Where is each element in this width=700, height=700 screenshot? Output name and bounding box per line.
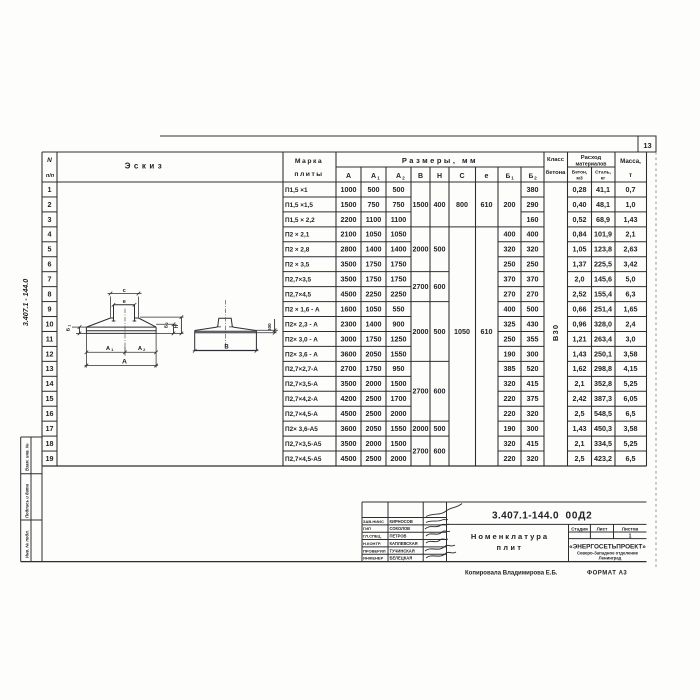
svg-text:500: 500 — [434, 245, 446, 254]
svg-text:ПРОВЕРИЛ: ПРОВЕРИЛ — [363, 548, 386, 553]
svg-text:355: 355 — [527, 334, 539, 343]
svg-text:4200: 4200 — [341, 394, 357, 403]
svg-text:320: 320 — [527, 409, 539, 418]
svg-text:1,05: 1,05 — [573, 245, 587, 254]
svg-text:500: 500 — [434, 424, 446, 433]
svg-text:3,42: 3,42 — [624, 260, 638, 269]
svg-text:500: 500 — [393, 185, 405, 194]
svg-text:N: N — [47, 157, 52, 164]
svg-text:190: 190 — [504, 424, 516, 433]
svg-text:П2 × 3,5: П2 × 3,5 — [285, 262, 310, 269]
svg-text:0,7: 0,7 — [626, 185, 636, 194]
svg-text:ЗАВ.НИИС: ЗАВ.НИИС — [363, 519, 384, 524]
svg-text:400: 400 — [434, 200, 446, 209]
svg-text:400: 400 — [527, 230, 539, 239]
svg-text:В30: В30 — [551, 324, 560, 341]
svg-text:1400: 1400 — [391, 245, 407, 254]
svg-text:320: 320 — [527, 245, 539, 254]
svg-text:5,25: 5,25 — [624, 439, 638, 448]
svg-text:П2,7×3,5-А5: П2,7×3,5-А5 — [285, 441, 322, 448]
svg-text:2000: 2000 — [413, 424, 429, 433]
svg-text:16: 16 — [46, 409, 54, 418]
svg-text:415: 415 — [527, 439, 539, 448]
svg-text:1,43: 1,43 — [624, 215, 638, 224]
svg-text:3.407.1 - 144.0: 3.407.1 - 144.0 — [23, 279, 30, 326]
svg-text:2,5: 2,5 — [575, 454, 585, 463]
svg-text:1100: 1100 — [391, 215, 407, 224]
svg-text:П1,5 ×1: П1,5 ×1 — [285, 187, 308, 194]
svg-text:П2,7×3,5: П2,7×3,5 — [285, 277, 312, 284]
svg-text:П2× 3,6 - А: П2× 3,6 - А — [285, 351, 318, 358]
svg-text:1750: 1750 — [366, 334, 382, 343]
svg-text:6,5: 6,5 — [626, 409, 636, 418]
svg-text:Размеры, мм: Размеры, мм — [402, 156, 478, 165]
svg-text:2000: 2000 — [391, 409, 407, 418]
svg-text:1050: 1050 — [454, 327, 470, 336]
svg-text:101,9: 101,9 — [594, 230, 612, 239]
svg-text:500: 500 — [434, 327, 446, 336]
svg-text:18: 18 — [46, 439, 54, 448]
svg-text:2500: 2500 — [366, 394, 382, 403]
svg-text:1400: 1400 — [366, 245, 382, 254]
svg-text:3: 3 — [48, 215, 52, 224]
svg-text:2100: 2100 — [341, 230, 357, 239]
svg-text:1700: 1700 — [391, 394, 407, 403]
svg-text:материалов: материалов — [576, 162, 607, 168]
svg-text:4500: 4500 — [341, 290, 357, 299]
svg-text:2,0: 2,0 — [575, 275, 585, 284]
svg-text:кг: кг — [601, 177, 605, 182]
svg-text:450,3: 450,3 — [594, 424, 612, 433]
svg-text:2700: 2700 — [413, 446, 429, 455]
svg-text:5,0: 5,0 — [626, 275, 636, 284]
svg-text:Ленинград: Ленинград — [599, 556, 622, 561]
svg-text:Сталь,: Сталь, — [595, 170, 611, 176]
svg-text:750: 750 — [368, 200, 380, 209]
svg-text:290: 290 — [527, 200, 539, 209]
svg-text:«ЭНЕРГОСЕТЬПРОЕКТ»: «ЭНЕРГОСЕТЬПРОЕКТ» — [569, 544, 646, 551]
svg-text:П2,7×4,5-А: П2,7×4,5-А — [285, 411, 318, 418]
svg-text:423,2: 423,2 — [594, 454, 612, 463]
svg-text:1750: 1750 — [366, 364, 382, 373]
svg-text:Н.КОНТР.: Н.КОНТР. — [363, 541, 381, 546]
svg-text:е: е — [485, 173, 489, 180]
svg-text:0,96: 0,96 — [573, 319, 587, 328]
svg-text:15: 15 — [46, 394, 54, 403]
svg-text:БЕЛЕЦКАЯ: БЕЛЕЦКАЯ — [390, 556, 413, 561]
svg-text:270: 270 — [527, 290, 539, 299]
svg-text:2,63: 2,63 — [624, 245, 638, 254]
svg-text:8: 8 — [48, 290, 52, 299]
svg-text:220: 220 — [504, 409, 516, 418]
svg-text:1100: 1100 — [366, 215, 382, 224]
svg-text:263,4: 263,4 — [594, 334, 612, 343]
svg-text:41,1: 41,1 — [596, 185, 610, 194]
svg-text:Марка: Марка — [295, 158, 323, 165]
svg-text:190: 190 — [504, 349, 516, 358]
svg-text:68,9: 68,9 — [596, 215, 610, 224]
svg-text:520: 520 — [527, 364, 539, 373]
svg-text:13: 13 — [46, 364, 54, 373]
svg-text:14: 14 — [46, 379, 54, 388]
svg-text:550: 550 — [393, 304, 405, 313]
svg-text:900: 900 — [393, 319, 405, 328]
svg-text:2000: 2000 — [413, 327, 429, 336]
svg-text:400: 400 — [504, 304, 516, 313]
svg-text:251,4: 251,4 — [594, 304, 612, 313]
svg-text:3600: 3600 — [341, 349, 357, 358]
svg-text:А: А — [346, 173, 351, 180]
svg-text:П2,7×2,7-А: П2,7×2,7-А — [285, 366, 318, 373]
svg-text:250: 250 — [504, 260, 516, 269]
svg-text:1: 1 — [67, 325, 71, 327]
svg-text:2: 2 — [165, 322, 169, 324]
svg-text:380: 380 — [527, 185, 539, 194]
svg-text:2: 2 — [48, 200, 52, 209]
svg-text:2050: 2050 — [366, 424, 382, 433]
svg-text:600: 600 — [434, 387, 446, 396]
svg-text:11: 11 — [46, 334, 54, 343]
svg-text:3000: 3000 — [341, 334, 357, 343]
svg-text:3500: 3500 — [341, 260, 357, 269]
svg-text:КАПЛЕВСКАЯ: КАПЛЕВСКАЯ — [390, 541, 418, 546]
svg-text:ИНЖЕНЕР: ИНЖЕНЕР — [363, 556, 384, 561]
svg-text:бетона: бетона — [546, 169, 567, 176]
svg-text:1050: 1050 — [391, 230, 407, 239]
svg-text:А: А — [396, 173, 401, 180]
svg-text:1,43: 1,43 — [573, 349, 587, 358]
svg-text:610: 610 — [481, 327, 493, 336]
svg-text:3,58: 3,58 — [624, 349, 638, 358]
svg-text:400: 400 — [504, 230, 516, 239]
svg-text:610: 610 — [481, 200, 493, 209]
svg-text:Лист: Лист — [597, 526, 609, 531]
svg-text:1600: 1600 — [341, 304, 357, 313]
svg-text:200: 200 — [504, 200, 516, 209]
svg-text:Листов: Листов — [622, 526, 639, 531]
svg-text:2250: 2250 — [391, 290, 407, 299]
svg-text:5: 5 — [48, 245, 52, 254]
svg-text:250: 250 — [527, 260, 539, 269]
svg-text:2,42: 2,42 — [573, 394, 587, 403]
svg-text:1550: 1550 — [391, 424, 407, 433]
svg-text:7: 7 — [48, 275, 52, 284]
svg-text:334,5: 334,5 — [594, 439, 612, 448]
svg-text:ГЛ.СПЕЦ.: ГЛ.СПЕЦ. — [363, 534, 382, 539]
svg-text:1000: 1000 — [341, 185, 357, 194]
svg-text:А: А — [371, 173, 376, 180]
svg-text:300: 300 — [527, 349, 539, 358]
svg-text:2200: 2200 — [341, 215, 357, 224]
svg-text:Номенклатура: Номенклатура — [471, 532, 549, 541]
svg-text:1,62: 1,62 — [573, 364, 587, 373]
svg-text:Инв. № подл.: Инв. № подл. — [25, 530, 30, 558]
svg-text:320: 320 — [504, 245, 516, 254]
svg-text:155,4: 155,4 — [594, 290, 612, 299]
svg-text:ПЕТРОВ: ПЕТРОВ — [390, 534, 407, 539]
svg-text:3500: 3500 — [341, 275, 357, 284]
svg-text:ГИП: ГИП — [363, 526, 371, 531]
svg-text:В: В — [418, 173, 423, 180]
svg-text:2500: 2500 — [366, 409, 382, 418]
svg-text:325: 325 — [504, 319, 516, 328]
svg-text:2,1: 2,1 — [626, 230, 636, 239]
svg-text:220: 220 — [504, 394, 516, 403]
svg-text:3,58: 3,58 — [624, 424, 638, 433]
svg-text:415: 415 — [527, 379, 539, 388]
svg-text:2700: 2700 — [341, 364, 357, 373]
svg-text:1750: 1750 — [391, 275, 407, 284]
svg-text:2000: 2000 — [413, 245, 429, 254]
svg-text:А: А — [122, 358, 127, 365]
svg-text:430: 430 — [527, 319, 539, 328]
svg-text:4500: 4500 — [341, 454, 357, 463]
svg-text:320: 320 — [527, 454, 539, 463]
svg-text:П2× 2,3 - А: П2× 2,3 - А — [285, 321, 318, 328]
svg-text:2700: 2700 — [413, 387, 429, 396]
svg-text:П2,7×4,5-А5: П2,7×4,5-А5 — [285, 456, 322, 463]
svg-text:Класс: Класс — [547, 157, 565, 163]
svg-text:1500: 1500 — [391, 439, 407, 448]
svg-text:2,52: 2,52 — [573, 290, 587, 299]
svg-text:3,0: 3,0 — [626, 334, 636, 343]
svg-text:5,25: 5,25 — [624, 379, 638, 388]
svg-text:1: 1 — [629, 534, 632, 540]
svg-text:0,40: 0,40 — [573, 200, 587, 209]
svg-text:160: 160 — [527, 215, 539, 224]
svg-text:250,1: 250,1 — [594, 349, 612, 358]
svg-text:48,1: 48,1 — [596, 200, 610, 209]
svg-text:6,3: 6,3 — [626, 290, 636, 299]
svg-text:19: 19 — [46, 454, 54, 463]
svg-text:387,3: 387,3 — [594, 394, 612, 403]
svg-text:ТУЧИНСКАЯ: ТУЧИНСКАЯ — [390, 548, 415, 553]
svg-text:6,05: 6,05 — [624, 394, 638, 403]
svg-text:м3: м3 — [576, 176, 583, 182]
svg-text:500: 500 — [527, 304, 539, 313]
svg-text:СОКОЛОВ: СОКОЛОВ — [390, 526, 411, 531]
svg-text:Стадия: Стадия — [571, 526, 588, 531]
svg-text:В: В — [224, 345, 229, 351]
svg-text:3.407.1-144.0: 3.407.1-144.0 — [492, 511, 559, 522]
svg-text:П2,7×4,2-А: П2,7×4,2-А — [285, 396, 318, 403]
svg-text:2,5: 2,5 — [575, 409, 585, 418]
svg-text:1750: 1750 — [391, 260, 407, 269]
svg-text:т: т — [629, 172, 632, 179]
svg-text:Расход: Расход — [581, 155, 602, 161]
svg-text:750: 750 — [393, 200, 405, 209]
svg-text:П1,5 × 2,2: П1,5 × 2,2 — [285, 217, 315, 224]
svg-text:3500: 3500 — [341, 379, 357, 388]
svg-text:1400: 1400 — [366, 319, 382, 328]
svg-text:Подпись и дата: Подпись и дата — [25, 483, 30, 518]
svg-text:П2× 3,0 - А: П2× 3,0 - А — [285, 336, 318, 343]
svg-text:3500: 3500 — [341, 439, 357, 448]
svg-text:2700: 2700 — [413, 282, 429, 291]
svg-text:12: 12 — [46, 349, 54, 358]
svg-text:320: 320 — [504, 379, 516, 388]
svg-text:Б: Б — [164, 325, 169, 328]
svg-text:800: 800 — [456, 200, 468, 209]
svg-text:1750: 1750 — [366, 260, 382, 269]
svg-text:13: 13 — [643, 141, 651, 150]
svg-text:6: 6 — [48, 260, 52, 269]
svg-text:352,8: 352,8 — [594, 379, 612, 388]
svg-text:9: 9 — [48, 304, 52, 313]
svg-text:плиты: плиты — [294, 171, 323, 178]
svg-text:2000: 2000 — [391, 454, 407, 463]
svg-text:2,1: 2,1 — [575, 439, 585, 448]
svg-text:300: 300 — [527, 424, 539, 433]
svg-text:п/п: п/п — [46, 173, 55, 179]
svg-text:Б: Б — [506, 173, 511, 180]
svg-text:П2 × 1,6 - А: П2 × 1,6 - А — [285, 306, 320, 313]
svg-text:123,8: 123,8 — [594, 245, 612, 254]
svg-text:270: 270 — [504, 290, 516, 299]
svg-text:1050: 1050 — [366, 230, 382, 239]
svg-text:0,28: 0,28 — [573, 185, 587, 194]
svg-text:Н: Н — [174, 324, 180, 328]
svg-text:2250: 2250 — [366, 290, 382, 299]
svg-text:1,43: 1,43 — [573, 424, 587, 433]
svg-text:КИРНОСОВ: КИРНОСОВ — [390, 519, 413, 524]
svg-text:1500: 1500 — [341, 200, 357, 209]
svg-text:2000: 2000 — [366, 379, 382, 388]
svg-text:1,65: 1,65 — [624, 304, 638, 313]
svg-text:1: 1 — [48, 185, 52, 194]
svg-text:П1,5 ×1,5: П1,5 ×1,5 — [285, 202, 313, 209]
svg-text:0,84: 0,84 — [573, 230, 587, 239]
svg-text:1250: 1250 — [391, 334, 407, 343]
svg-text:Бетон,: Бетон, — [572, 170, 588, 176]
svg-text:2,1: 2,1 — [575, 379, 585, 388]
svg-text:4: 4 — [48, 230, 52, 239]
svg-text:4500: 4500 — [341, 409, 357, 418]
svg-text:П2 × 2,8: П2 × 2,8 — [285, 247, 310, 254]
svg-text:2300: 2300 — [341, 319, 357, 328]
svg-text:298,8: 298,8 — [594, 364, 612, 373]
svg-text:2500: 2500 — [366, 454, 382, 463]
svg-text:370: 370 — [527, 275, 539, 284]
svg-text:1750: 1750 — [366, 275, 382, 284]
svg-text:1,21: 1,21 — [573, 334, 587, 343]
svg-text:П2× 3,6-А5: П2× 3,6-А5 — [285, 426, 318, 433]
svg-text:2050: 2050 — [366, 349, 382, 358]
svg-text:328,0: 328,0 — [594, 319, 612, 328]
svg-text:225,5: 225,5 — [594, 260, 612, 269]
svg-text:1500: 1500 — [413, 200, 429, 209]
svg-text:1,0: 1,0 — [626, 200, 636, 209]
svg-text:600: 600 — [434, 446, 446, 455]
svg-text:100: 100 — [267, 323, 272, 331]
svg-text:375: 375 — [527, 394, 539, 403]
svg-text:Копировала Владимирова Е.Б.: Копировала Владимирова Е.Б. — [465, 571, 558, 577]
svg-text:6,5: 6,5 — [626, 454, 636, 463]
svg-text:3600: 3600 — [341, 424, 357, 433]
svg-text:17: 17 — [46, 424, 54, 433]
svg-text:1050: 1050 — [366, 304, 382, 313]
svg-text:Эскиз: Эскиз — [125, 162, 166, 171]
svg-text:250: 250 — [504, 334, 516, 343]
svg-text:370: 370 — [504, 275, 516, 284]
svg-text:500: 500 — [368, 185, 380, 194]
svg-text:Взам. инв. №: Взам. инв. № — [25, 443, 30, 471]
svg-text:00Д2: 00Д2 — [565, 511, 592, 522]
svg-text:Б: Б — [529, 173, 534, 180]
svg-text:1550: 1550 — [391, 349, 407, 358]
svg-text:2000: 2000 — [366, 439, 382, 448]
svg-text:П2,7×3,5-А: П2,7×3,5-А — [285, 381, 318, 388]
svg-text:220: 220 — [504, 454, 516, 463]
svg-text:1,37: 1,37 — [573, 260, 587, 269]
svg-text:Н: Н — [437, 173, 442, 180]
svg-text:П2 × 2,1: П2 × 2,1 — [285, 232, 310, 239]
svg-text:0,52: 0,52 — [573, 215, 587, 224]
svg-text:2,4: 2,4 — [626, 319, 636, 328]
svg-text:плит: плит — [497, 543, 524, 552]
svg-text:ФОРМАТ А3: ФОРМАТ А3 — [587, 571, 627, 577]
svg-text:145,6: 145,6 — [594, 275, 612, 284]
svg-text:600: 600 — [434, 282, 446, 291]
svg-text:С: С — [459, 173, 464, 180]
svg-text:0,66: 0,66 — [573, 304, 587, 313]
svg-text:950: 950 — [393, 364, 405, 373]
svg-text:П2,7×4,5: П2,7×4,5 — [285, 292, 312, 299]
svg-text:4,15: 4,15 — [624, 364, 638, 373]
svg-text:Масса,: Масса, — [620, 158, 641, 165]
svg-text:2800: 2800 — [341, 245, 357, 254]
svg-text:548,5: 548,5 — [594, 409, 612, 418]
svg-text:10: 10 — [46, 319, 54, 328]
svg-text:385: 385 — [504, 364, 516, 373]
svg-text:1500: 1500 — [391, 379, 407, 388]
svg-text:320: 320 — [504, 439, 516, 448]
